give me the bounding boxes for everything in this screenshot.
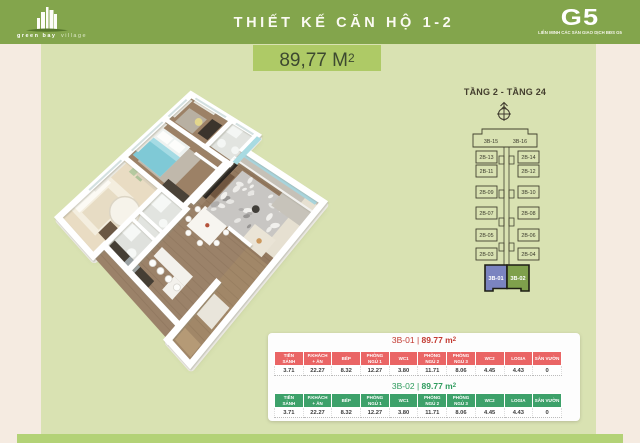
svg-text:2B-06: 2B-06 [521, 233, 535, 239]
svg-text:2B-08: 2B-08 [521, 211, 535, 217]
svg-text:2B-11: 2B-11 [480, 169, 494, 175]
svg-text:2B-09: 2B-09 [479, 190, 493, 196]
svg-text:2B-05: 2B-05 [479, 233, 493, 239]
svg-text:3B-01: 3B-01 [488, 276, 503, 282]
svg-text:3B-10: 3B-10 [521, 190, 535, 196]
svg-text:2B-04: 2B-04 [521, 252, 535, 258]
svg-text:3B-16: 3B-16 [513, 139, 527, 145]
svg-text:3B-02: 3B-02 [510, 276, 525, 282]
svg-text:2B-03: 2B-03 [479, 252, 493, 258]
svg-text:2B-12: 2B-12 [521, 169, 535, 175]
svg-text:2B-14: 2B-14 [521, 155, 535, 161]
svg-text:2B-07: 2B-07 [479, 211, 493, 217]
svg-text:2B-13: 2B-13 [479, 155, 493, 161]
svg-text:3B-15: 3B-15 [484, 139, 498, 145]
